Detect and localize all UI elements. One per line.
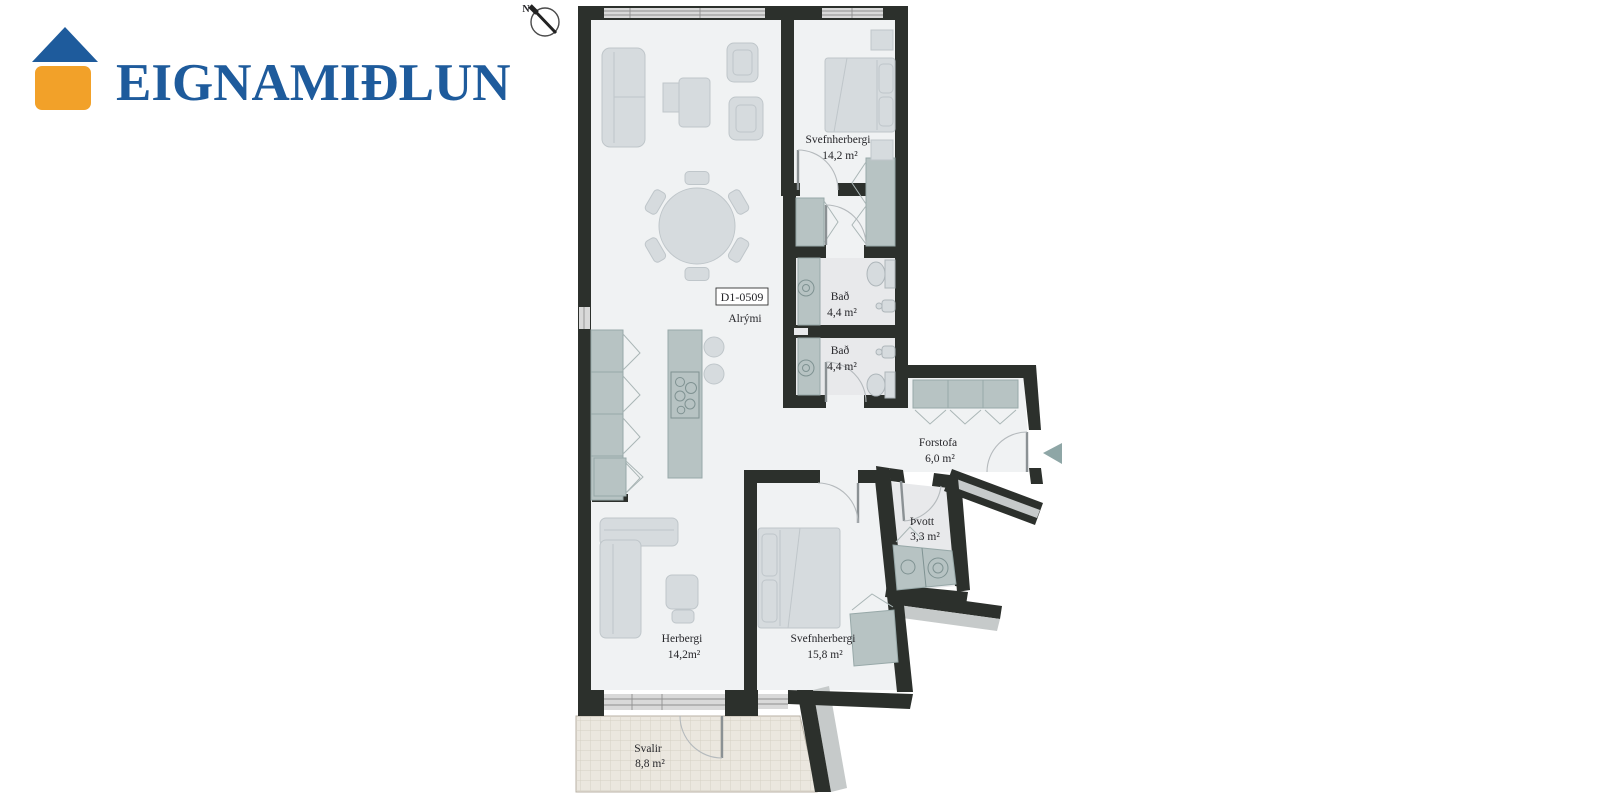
label-herbergi-area: 14,2m² — [668, 649, 701, 661]
armchair-2 — [729, 97, 763, 140]
label-bedroom1-area: 14,2 m² — [822, 150, 858, 162]
compass-icon: N — [522, 4, 559, 36]
wall-balcony-pier-left — [578, 690, 604, 716]
label-laundry-name: Þvott — [910, 516, 935, 528]
unit-label: D1-0509 — [721, 290, 764, 304]
window-bottom-1 — [604, 694, 725, 710]
shower-bath1 — [798, 258, 820, 325]
compass-label: N — [522, 4, 530, 15]
balcony — [576, 716, 817, 792]
label-balcony-area: 8,8 m² — [635, 758, 665, 770]
label-laundry-area: 3,3 m² — [910, 531, 940, 543]
page: { "page": { "background": "#ffffff" }, "… — [0, 0, 1600, 804]
window-top-2 — [822, 8, 883, 18]
house-icon — [26, 24, 108, 112]
wall-balcony-pier-mid — [725, 690, 758, 716]
bed-bedroom2 — [758, 528, 840, 628]
label-bath2-area: 4,4 m² — [827, 361, 857, 373]
wall-bedroom2-left — [744, 470, 757, 692]
bed-bedroom1 — [825, 58, 895, 132]
bar-stool-1 — [704, 337, 724, 357]
brand-name: EIGNAMIÐLUN — [116, 57, 511, 112]
wall-right-upper — [895, 6, 908, 408]
wall-bath-left — [783, 196, 796, 408]
window-left — [579, 307, 590, 329]
nightstand-2 — [871, 140, 893, 160]
label-bath1-name: Bað — [831, 290, 850, 303]
floorplan: N Svefnherbergi 14,2 m² D1-0509 Alrými B… — [510, 0, 1080, 804]
label-balcony-name: Svalir — [634, 743, 662, 755]
kitchen-island — [668, 330, 702, 478]
house-body-shape — [35, 66, 91, 110]
armchair-1 — [727, 43, 758, 82]
window-top-1 — [604, 8, 765, 18]
logo: EIGNAMIÐLUN — [26, 24, 511, 112]
nightstand-1 — [871, 30, 893, 50]
window-bottom-2 — [758, 694, 788, 709]
label-forstofa-name: Forstofa — [919, 437, 957, 449]
toilet-bath2 — [867, 372, 895, 398]
toilet-bath1 — [867, 260, 895, 288]
label-forstofa-area: 6,0 m² — [925, 453, 955, 465]
label-herbergi-name: Herbergi — [662, 633, 703, 645]
floorplan-svg: N Svefnherbergi 14,2 m² D1-0509 Alrými B… — [510, 0, 1080, 804]
label-bedroom2-area: 15,8 m² — [807, 649, 843, 661]
shower-bath2 — [798, 338, 820, 395]
tv-table — [663, 83, 679, 112]
label-bedroom1-name: Svefnherbergi — [806, 134, 871, 146]
side-table — [679, 78, 710, 127]
sofa-living — [602, 48, 645, 147]
wall-forstofa-top — [895, 365, 1025, 378]
bar-stool-2 — [704, 364, 724, 384]
label-bedroom2-name: Svefnherbergi — [791, 633, 856, 645]
label-alrymi-name: Alrými — [728, 313, 761, 325]
entrance-arrow-icon — [1043, 443, 1062, 464]
label-bath1-area: 4,4 m² — [827, 307, 857, 319]
wall-left — [578, 6, 591, 716]
label-bath2-name: Bað — [831, 344, 850, 357]
house-roof-shape — [32, 27, 98, 62]
wall-bedroom1-left — [781, 19, 794, 196]
